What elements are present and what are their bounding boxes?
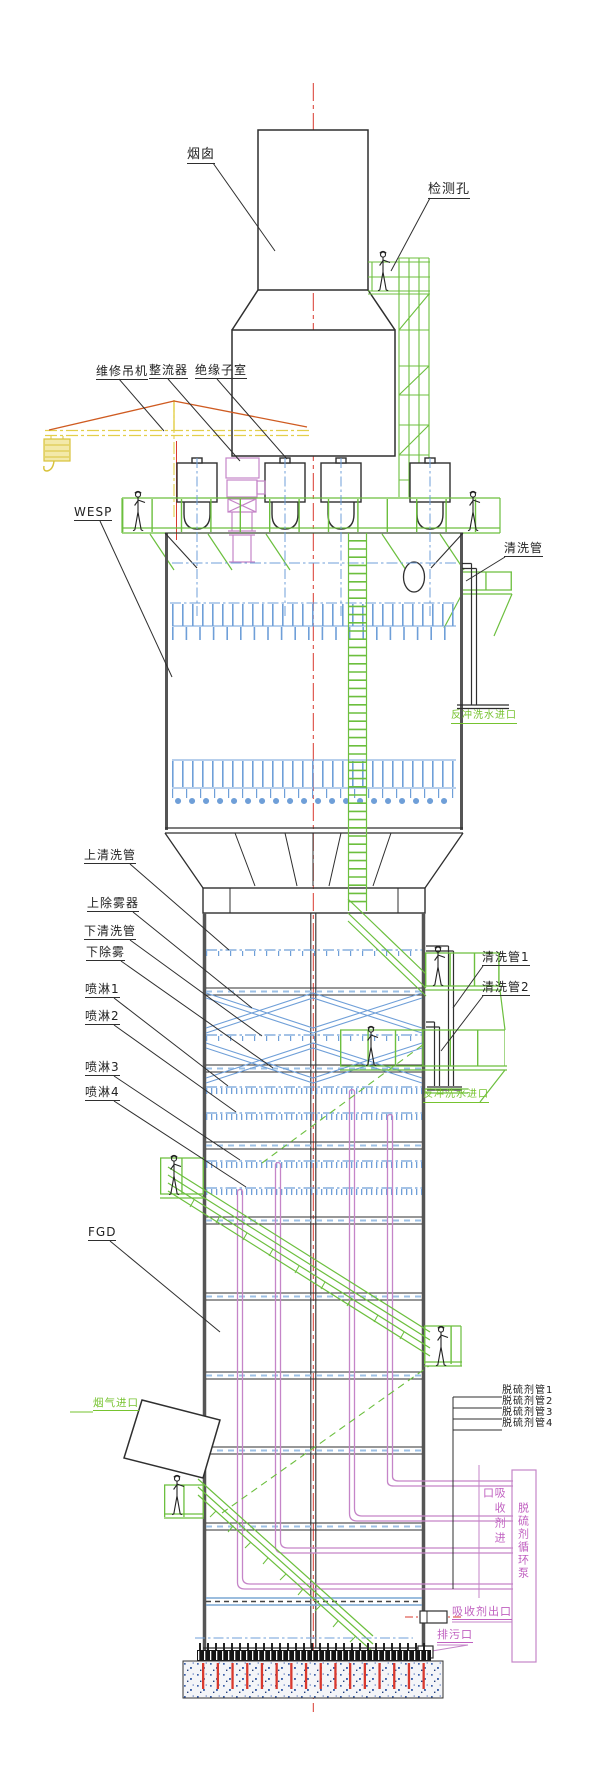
label-backwash-inlet-lower: 反冲洗水进口 [423,1090,489,1103]
label-chimney: 烟囱 [187,148,215,164]
flue-gas-duct [70,1400,220,1478]
lower-demister [206,1043,422,1083]
label-inspection-hole: 检测孔 [428,183,470,199]
access-ladder [349,533,367,911]
cleaning-pipes [426,564,509,1091]
label-wesp: WESP [74,506,112,521]
fgd-internals [206,950,422,1192]
label-lower-cleaning-pipe: 下清洗管 [84,925,136,940]
lower-left-platform [164,1485,204,1518]
label-desulfurizer-pipe-4: 脱硫剂管4 [502,1419,553,1430]
label-upper-demister: 上除雾器 [87,897,139,912]
worker-figure [378,251,390,290]
label-cleaning-pipe-1: 清洗管1 [482,951,530,966]
worker-figure [133,491,145,530]
upper-demister [206,993,422,1033]
label-spray-3: 喷淋3 [85,1061,120,1076]
rectifier-unit [226,458,265,562]
drawing-canvas [0,0,600,1782]
label-desulfurizer-pipe-1: 脱硫剂管1 [502,1386,553,1397]
label-absorbent-outlet: 吸收剂出口 [452,1606,512,1620]
label-flue-gas-inlet: 烟气进口 [93,1398,139,1411]
absorbent-outlet-nozzle [420,1611,447,1623]
manhole [404,562,425,592]
long-stair [168,1167,430,1356]
worker-figure [468,491,480,530]
cad-elevation-drawing: 烟囱 检测孔 维修吊机 整流器 绝缘子室 WESP 清洗管 反冲洗水进口 上清洗… [0,0,600,1782]
label-desulfurizer-circulation-pump: 脱硫剂循环泵 [517,1502,529,1632]
label-desulfurizer-pipe-3: 脱硫剂管3 [502,1408,553,1419]
spray-headers [206,1087,422,1192]
label-upper-cleaning-pipe: 上清洗管 [84,849,136,864]
label-cleaning-pipe-2: 清洗管2 [482,981,530,996]
label-fgd: FGD [88,1226,116,1241]
worker-figure [169,1155,181,1194]
label-desulfurizer-pipe-2: 脱硫剂管2 [502,1397,553,1408]
crane-hook-icon [44,436,70,471]
lower-stair [198,1479,373,1652]
worker-figure [433,946,445,985]
wesp-vessel [165,533,463,913]
label-maintenance-crane: 维修吊机 [96,365,148,380]
wesp-internals [170,458,458,801]
label-rectifier: 整流器 [149,364,188,379]
label-spray-2: 喷淋2 [85,1010,120,1025]
worker-figure [436,1326,448,1365]
label-spray-1: 喷淋1 [85,983,120,998]
label-drain-outlet: 排污口 [437,1629,473,1643]
foundation [183,1638,443,1698]
label-lower-demister: 下除雾 [86,946,125,961]
label-cleaning-pipe: 清洗管 [504,542,543,557]
label-absorbent-inlet: 吸收剂进口 [482,1487,505,1559]
label-backwash-inlet-upper: 反冲洗水进口 [451,711,517,724]
worker-figure [172,1475,184,1514]
label-insulator-room: 绝缘子室 [195,364,247,379]
label-spray-4: 喷淋4 [85,1086,120,1101]
